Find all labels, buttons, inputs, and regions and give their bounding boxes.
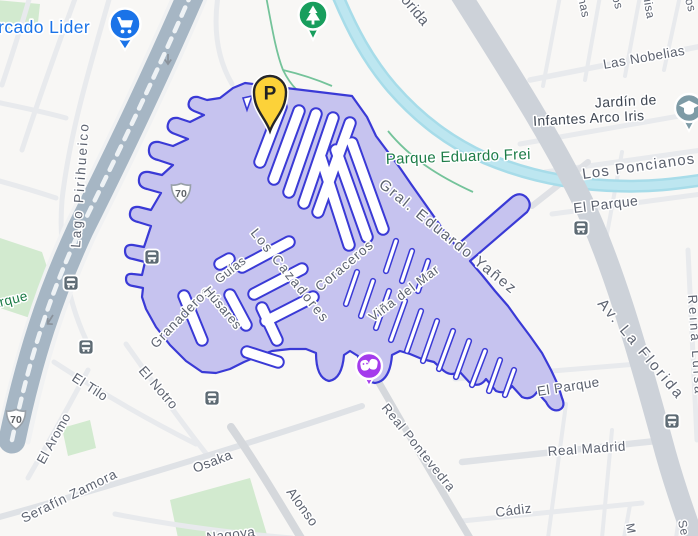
poi-label-mercado-lider[interactable]: Mercado Lider xyxy=(0,17,90,37)
bus-icon[interactable] xyxy=(574,221,589,236)
bus-icon[interactable] xyxy=(205,391,220,406)
map-viewport[interactable]: Mercado Lider Florida Las Nobelias Jardí… xyxy=(0,0,698,536)
map-canvas[interactable]: Mercado Lider Florida Las Nobelias Jardí… xyxy=(0,0,698,536)
bus-icon[interactable] xyxy=(145,250,160,265)
bus-icon[interactable] xyxy=(64,276,79,291)
svg-text:70: 70 xyxy=(175,188,187,200)
bus-icon[interactable] xyxy=(665,414,680,429)
svg-text:70: 70 xyxy=(10,414,22,426)
svg-text:P: P xyxy=(264,84,277,105)
street-label-fragment-se: Se xyxy=(675,519,692,536)
bus-icon[interactable] xyxy=(79,340,94,355)
